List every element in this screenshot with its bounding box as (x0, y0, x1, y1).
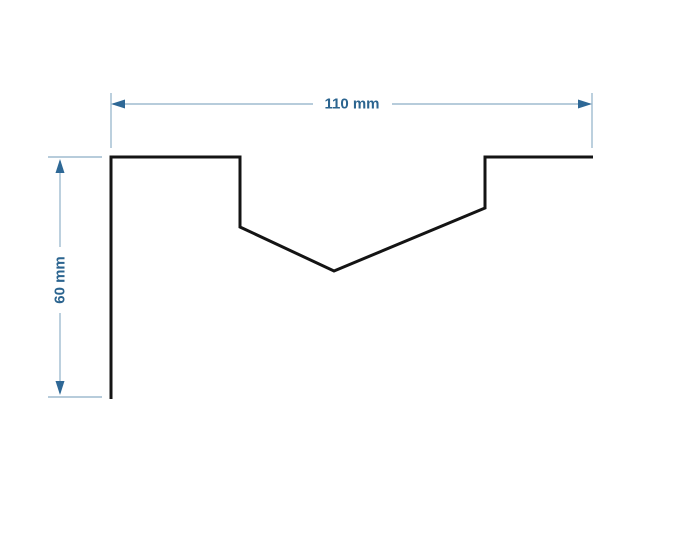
width-arrowhead-right (578, 100, 592, 109)
technical-drawing-canvas: 110 mm 60 mm (0, 0, 675, 540)
height-dimension-label: 60 mm (52, 256, 69, 304)
width-dimension: 110 mm (111, 93, 592, 148)
height-arrowhead-top (56, 159, 65, 173)
profile-outline (111, 157, 593, 399)
height-arrowhead-bottom (56, 381, 65, 395)
profile (111, 157, 593, 399)
drawing-svg: 110 mm 60 mm (0, 0, 675, 540)
width-arrowhead-left (111, 100, 125, 109)
width-dimension-label: 110 mm (324, 96, 379, 113)
height-dimension: 60 mm (48, 157, 102, 397)
